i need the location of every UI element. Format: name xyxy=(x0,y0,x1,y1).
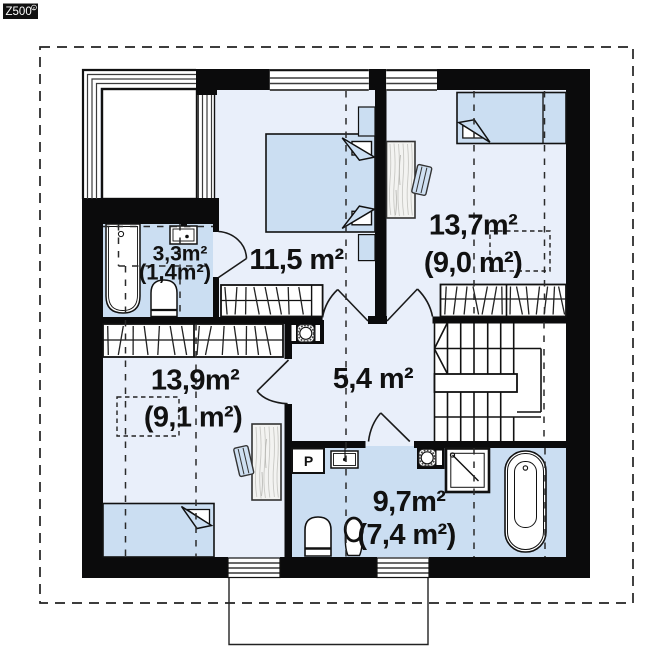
svg-text:Z500: Z500 xyxy=(6,6,32,18)
svg-text:(9,1 m²): (9,1 m²) xyxy=(144,402,242,434)
svg-text:P: P xyxy=(304,453,313,469)
svg-text:11,5 m²: 11,5 m² xyxy=(249,244,344,276)
svg-text:(9,0 m²): (9,0 m²) xyxy=(424,247,522,279)
svg-text:(1,4m²): (1,4m²) xyxy=(139,260,211,285)
svg-text:(7,4 m²): (7,4 m²) xyxy=(357,519,455,551)
svg-text:5,4 m²: 5,4 m² xyxy=(333,363,414,395)
svg-text:13,7m²: 13,7m² xyxy=(429,210,518,242)
svg-text:9,7m²: 9,7m² xyxy=(373,486,447,518)
svg-text:13,9m²: 13,9m² xyxy=(151,365,240,397)
